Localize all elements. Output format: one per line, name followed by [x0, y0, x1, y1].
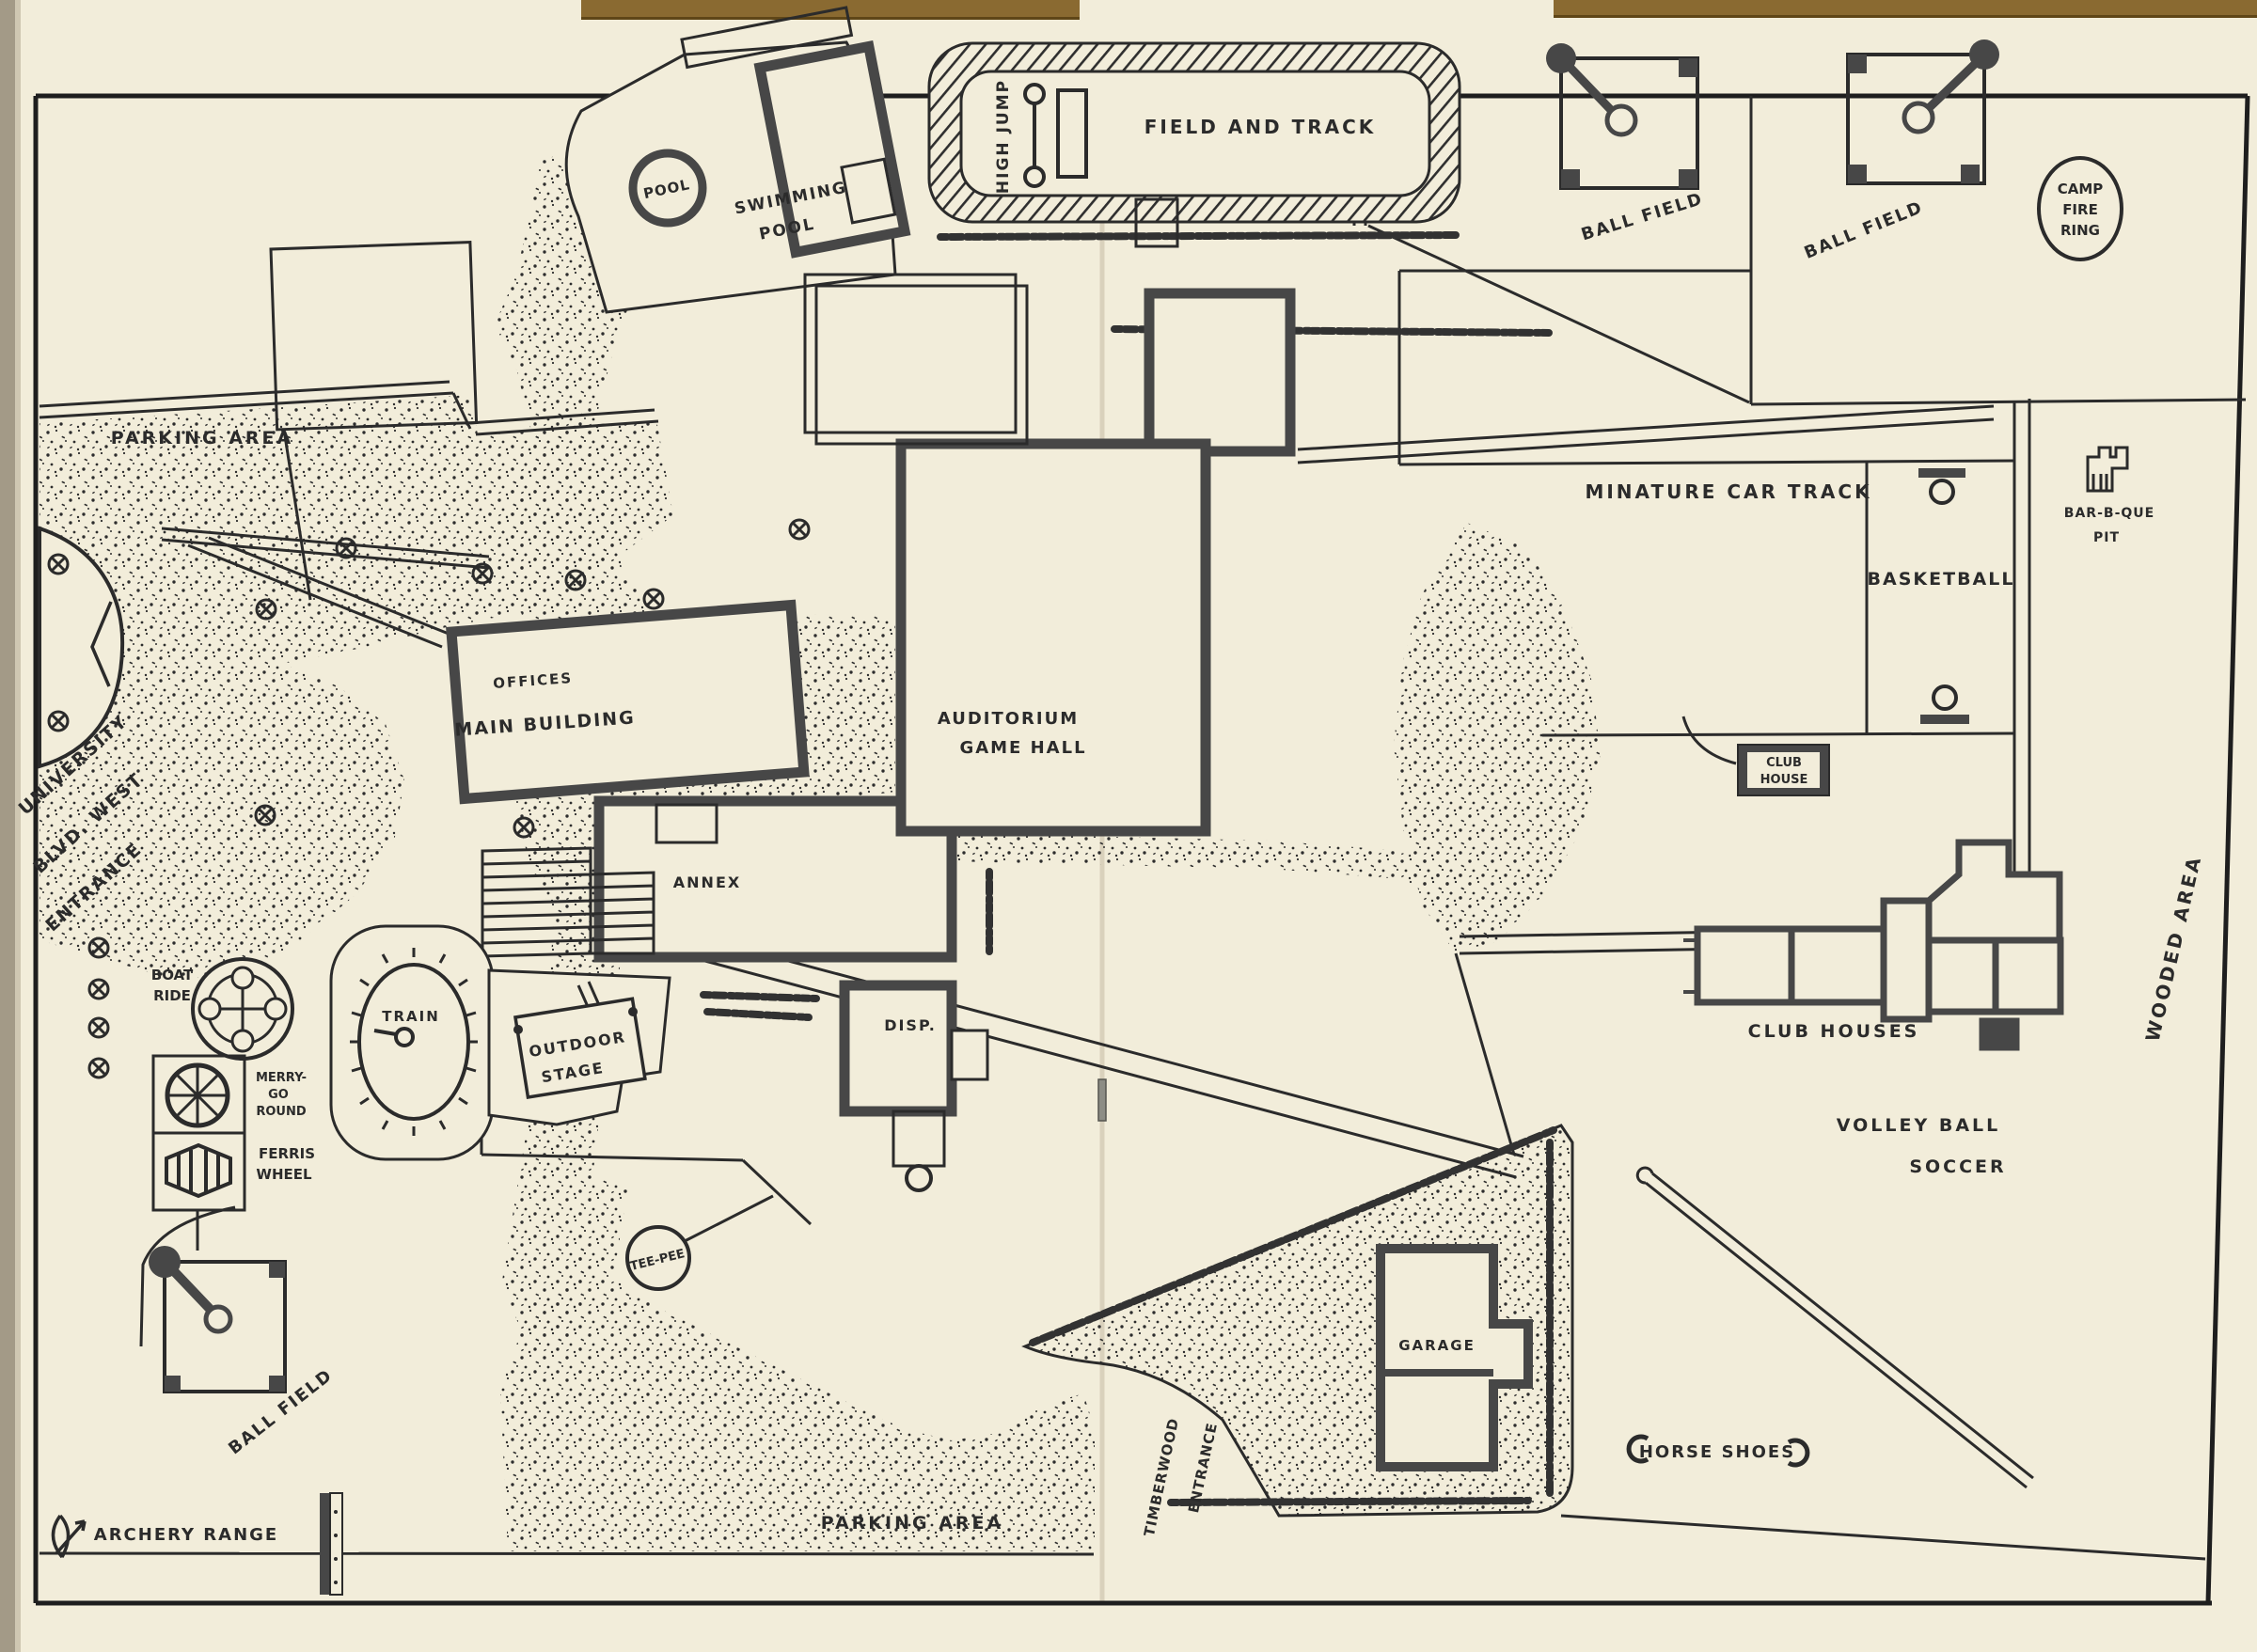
pool-side-room	[842, 159, 895, 223]
book-edge-shadow	[1554, 15, 2257, 18]
timberwood-entrance-label-1: TIMBERWOOD	[1141, 1416, 1182, 1537]
archery-range-label: ARCHERY RANGE	[94, 1525, 278, 1545]
basketball-hoop-icon	[1918, 468, 1965, 503]
outdoor-stage: OUTDOOR STAGE	[489, 970, 670, 1125]
club-house-label-2: HOUSE	[1760, 773, 1808, 787]
ball-field-label: BALL FIELD	[1579, 189, 1706, 244]
book-edge-band	[581, 0, 1080, 17]
train-icon	[396, 1029, 413, 1046]
camp-fire-ring-label-2: FIRE	[2062, 201, 2098, 218]
tee-pee: TEE-PEE	[627, 1227, 689, 1289]
park-map: HIGH JUMP FIELD AND TRACK POOL SWIMMING …	[0, 0, 2257, 1652]
bar-b-que-label-1: BAR-B-QUE	[2064, 506, 2154, 521]
bar-b-que-label-2: PIT	[2093, 530, 2120, 545]
ferris-wheel-icon	[166, 1145, 230, 1196]
main-building: OFFICES MAIN BUILDING	[451, 606, 804, 799]
soccer-label: SOCCER	[1909, 1156, 2006, 1177]
high-jump-label: HIGH JUMP	[994, 79, 1013, 194]
basketball-court: BASKETBALL	[1868, 468, 2015, 724]
train-label: TRAIN	[382, 1008, 440, 1025]
merry-go-round: MERRY- GO ROUND	[167, 1065, 307, 1125]
bar-b-que-pit-icon	[2088, 448, 2127, 491]
club-house-label-1: CLUB	[1766, 756, 1802, 770]
boat-ride-label-1: BOAT	[151, 967, 194, 983]
wooded-area-label: WOODED AREA	[2141, 853, 2206, 1044]
basketball-hoop-icon	[1920, 686, 1969, 724]
boat-ride-label-2: RIDE	[153, 987, 191, 1004]
horse-shoes-label: HORSE SHOES	[1639, 1442, 1795, 1462]
annex-label: ANNEX	[673, 873, 741, 891]
target-wall-icon	[320, 1493, 342, 1595]
bar-b-que-pit: BAR-B-QUE PIT	[2064, 448, 2154, 545]
garage-label: GARAGE	[1398, 1337, 1476, 1354]
auditorium-south-walk-stipple	[952, 833, 1463, 899]
parking-area-top-label: PARKING AREA	[111, 428, 293, 448]
camp-fire-ring-label-3: RING	[2060, 222, 2100, 239]
ferris-wheel: FERRIS WHEEL	[166, 1145, 315, 1196]
tree-icon	[89, 1018, 108, 1037]
bow-and-arrow-icon	[53, 1516, 85, 1557]
tree-icon	[89, 1059, 108, 1078]
ball-field-northwest: BALL FIELD	[1546, 43, 1706, 244]
dispensary-building: DISP.	[844, 985, 987, 1190]
minature-car-track-label: MINATURE CAR TRACK	[1585, 480, 1871, 503]
staple	[1098, 1079, 1106, 1121]
tree-icon	[790, 520, 809, 539]
parking-area-bottom-stipple	[500, 1177, 1095, 1551]
auditorium-game-hall: AUDITORIUM GAME HALL	[901, 293, 1290, 831]
ball-field-northeast: BALL FIELD	[1802, 39, 1999, 263]
field-and-track-label: FIELD AND TRACK	[1144, 116, 1377, 138]
disp-label: DISP.	[884, 1016, 937, 1034]
book-edge-shadow	[581, 17, 1080, 20]
club-houses-label: CLUB HOUSES	[1748, 1021, 1920, 1042]
club-houses-cluster	[1683, 842, 2060, 1047]
parking-area-bottom-label: PARKING AREA	[821, 1513, 1003, 1534]
camp-fire-ring: CAMP FIRE RING	[2039, 158, 2122, 260]
ball-field-southwest: BALL FIELD	[149, 1246, 337, 1458]
auditorium-label: AUDITORIUM	[938, 709, 1079, 729]
field-and-track: HIGH JUMP FIELD AND TRACK	[929, 43, 1460, 222]
train-ride: TRAIN	[331, 926, 493, 1159]
left-page-edge	[0, 0, 15, 1652]
tree-icon	[89, 980, 108, 999]
basketball-label: BASKETBALL	[1868, 569, 2015, 590]
horse-shoes: HORSE SHOES	[1629, 1437, 1807, 1465]
ferris-wheel-label-2: WHEEL	[256, 1166, 312, 1183]
camp-fire-ring-label-1: CAMP	[2058, 181, 2104, 197]
game-hall-label: GAME HALL	[959, 738, 1086, 758]
boat-ride: BOAT RIDE	[151, 959, 292, 1059]
archery-range: ARCHERY RANGE	[53, 1516, 278, 1557]
book-edge-band	[1554, 0, 2257, 15]
volley-ball-label: VOLLEY BALL	[1837, 1115, 2001, 1136]
scanned-map-page: HIGH JUMP FIELD AND TRACK POOL SWIMMING …	[0, 0, 2257, 1652]
club-house-small: CLUB HOUSE	[1738, 745, 1829, 795]
pipe-slide-path	[1637, 1168, 2033, 1487]
ball-field-label: BALL FIELD	[1802, 197, 1927, 263]
miniature-car-track-area: MINATURE CAR TRACK	[1585, 480, 1871, 503]
fountain-icon	[907, 1166, 931, 1190]
left-page-edge-highlight	[15, 0, 21, 1652]
ferris-wheel-label-1: FERRIS	[259, 1145, 315, 1162]
merry-go-round-label-2: GO	[268, 1088, 289, 1102]
swimming-pool-complex: POOL SWIMMING POOL	[566, 8, 905, 312]
merry-go-round-label-3: ROUND	[256, 1105, 306, 1119]
merry-go-round-label-1: MERRY-	[256, 1071, 307, 1085]
tree-grove-stipple	[1394, 523, 1601, 952]
